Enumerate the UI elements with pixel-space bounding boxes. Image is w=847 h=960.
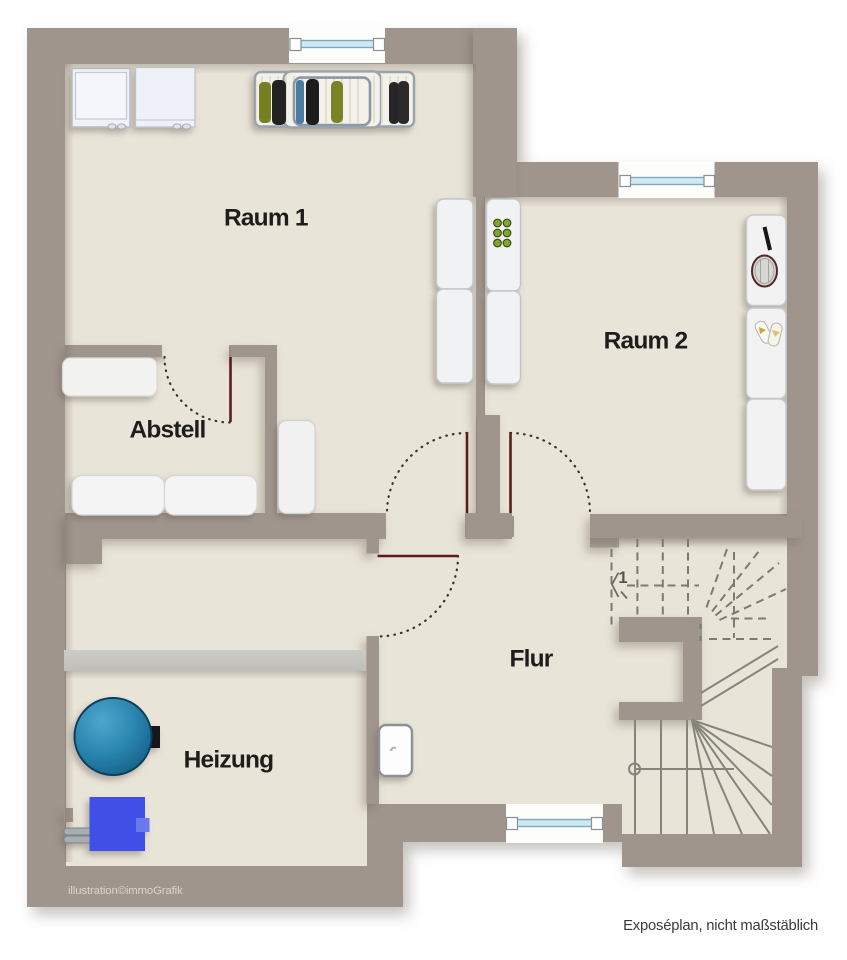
svg-text:illustration©immoGrafik: illustration©immoGrafik <box>68 885 183 897</box>
svg-text:1: 1 <box>618 569 627 587</box>
svg-text:Abstell: Abstell <box>129 416 205 443</box>
svg-text:Exposéplan, nicht maßstäblich: Exposéplan, nicht maßstäblich <box>623 918 818 934</box>
svg-text:Flur: Flur <box>509 646 553 673</box>
svg-text:Heizung: Heizung <box>184 747 274 774</box>
svg-text:Raum 1: Raum 1 <box>224 204 308 231</box>
svg-text:Raum 2: Raum 2 <box>604 328 688 355</box>
